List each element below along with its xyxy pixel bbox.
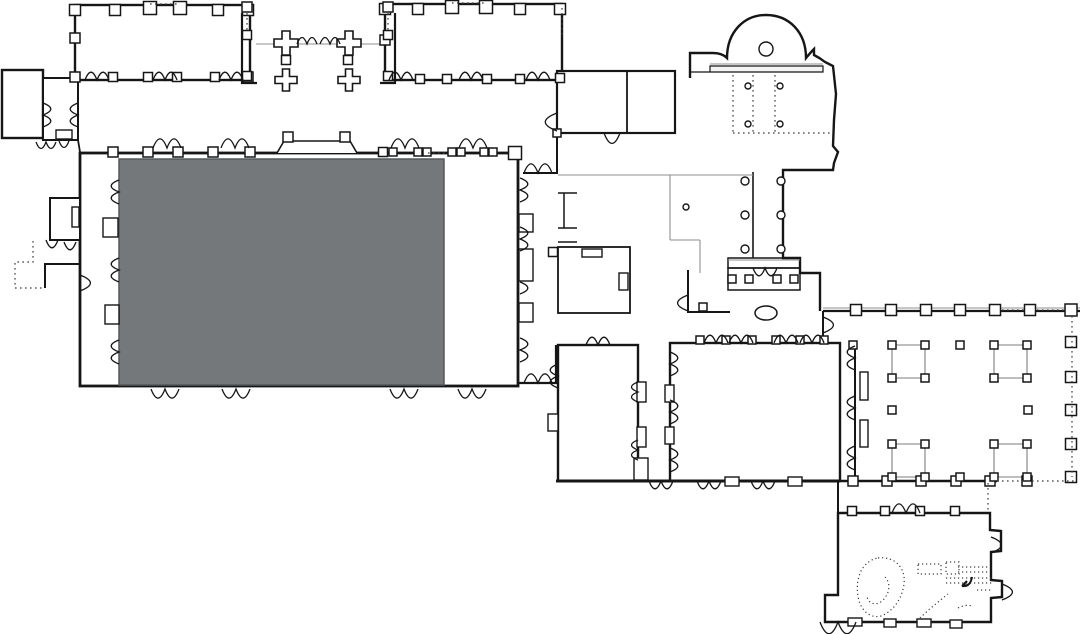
furniture-oval [755, 306, 777, 320]
floor-plan-image [0, 0, 1080, 634]
highlighted-room[interactable] [119, 159, 444, 385]
room-outline [670, 343, 840, 481]
cloister-planters [892, 345, 1027, 477]
room-outline [558, 345, 638, 481]
column-circles [683, 42, 785, 253]
room-outline [557, 71, 675, 133]
room-outline [385, 4, 562, 80]
floor-plan-canvas [0, 0, 1080, 634]
room-outline [2, 70, 43, 138]
